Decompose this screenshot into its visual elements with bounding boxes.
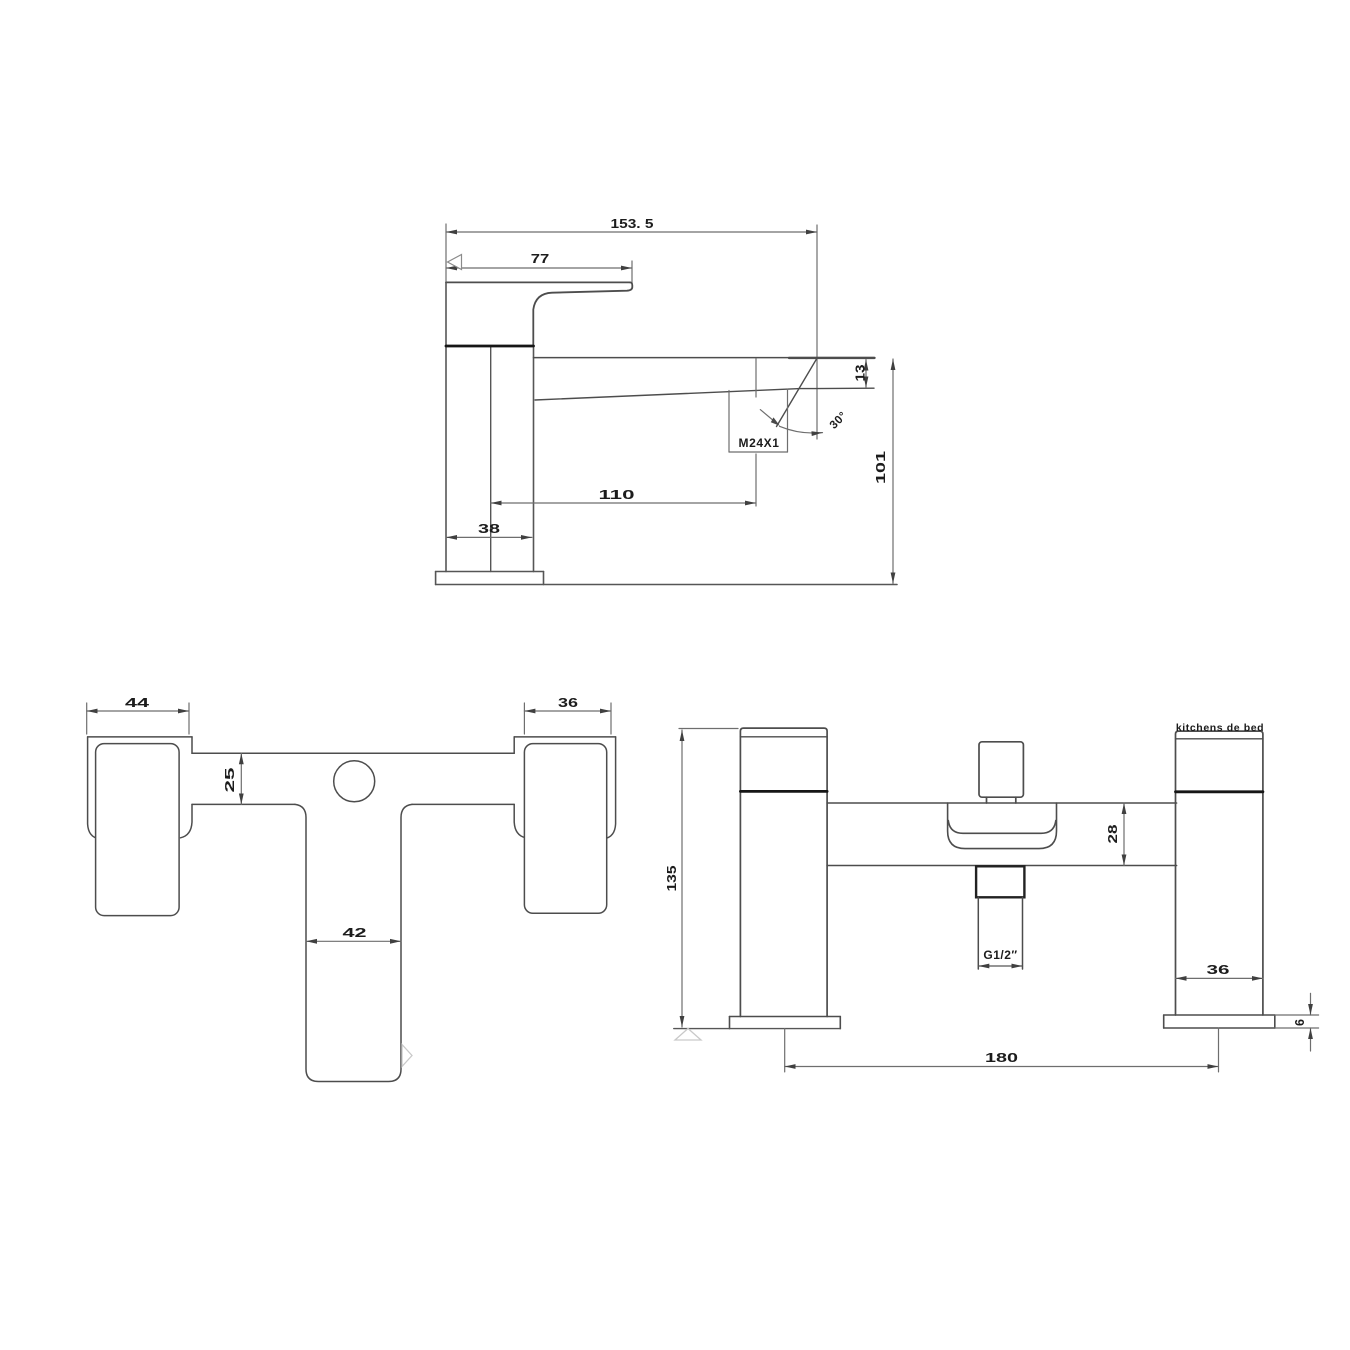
svg-text:153. 5: 153. 5 (611, 216, 654, 231)
svg-text:180: 180 (985, 1050, 1018, 1065)
svg-text:28: 28 (1105, 825, 1120, 844)
svg-text:36: 36 (1207, 962, 1230, 977)
svg-text:25: 25 (222, 768, 237, 793)
svg-text:kitchens de bed: kitchens de bed (1176, 722, 1264, 734)
svg-text:36: 36 (558, 695, 578, 710)
svg-text:77: 77 (531, 251, 550, 266)
svg-text:44: 44 (125, 695, 150, 710)
svg-text:M24X1: M24X1 (738, 436, 779, 450)
svg-text:38: 38 (478, 521, 500, 536)
svg-text:6: 6 (1293, 1018, 1307, 1026)
svg-text:135: 135 (664, 866, 679, 892)
svg-text:G1/2″: G1/2″ (983, 948, 1017, 962)
svg-text:13: 13 (853, 364, 867, 381)
svg-text:101: 101 (873, 451, 888, 484)
svg-text:42: 42 (343, 925, 367, 940)
svg-text:30°: 30° (828, 410, 850, 432)
svg-text:110: 110 (599, 487, 635, 502)
